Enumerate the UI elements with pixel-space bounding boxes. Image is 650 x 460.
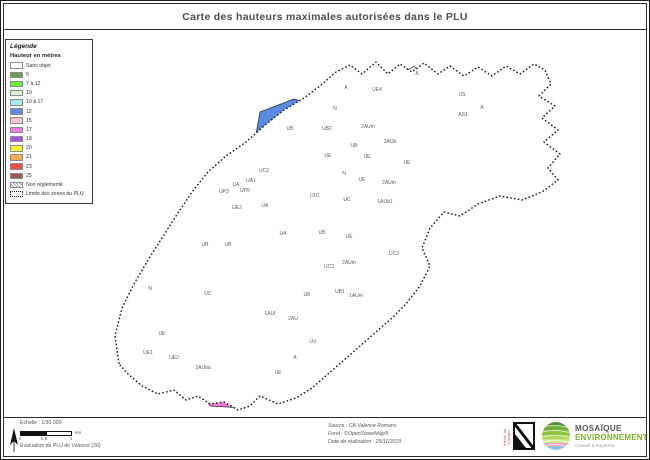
legend-row: 23 [10, 162, 89, 171]
eval-text: Evaluation du PLU de Valence (26) [20, 443, 101, 449]
zone-label: UP3 [219, 189, 229, 195]
zone-label: UA [280, 231, 288, 237]
legend-label: Sans objet [26, 63, 51, 69]
page-title: Carte des hauteurs maximales autorisées … [182, 11, 468, 23]
scale-bar-filled [20, 431, 47, 436]
legend-row: Limite des zones du PLU [10, 190, 89, 199]
zone-label: UA [262, 203, 270, 209]
scale-tick: 1 [70, 436, 72, 441]
legend-items: Sans objet57 à 121010 à 1712151718202123… [10, 61, 89, 199]
zone-label: UE [364, 154, 372, 160]
zone-label: UV [310, 339, 318, 345]
zone-label: UE [275, 370, 283, 376]
zone-label: UE [346, 234, 354, 240]
zone-label: UB [304, 292, 312, 298]
zone-label: 2AU [288, 316, 298, 322]
zone-label: UC2 [259, 168, 269, 174]
zone-label: UB2 [322, 126, 332, 132]
zone-label: 1AUb1 [377, 199, 393, 205]
source-line: Date de réalisation : 29/11/2019 [328, 439, 401, 447]
legend-swatch [10, 173, 23, 180]
map-frame: AUE4ANUBUB22AUm2AUbUBUEUENUE2AUmUEUC2UAU… [3, 29, 647, 418]
zone-label: 1AUI [264, 311, 275, 317]
legend-row: Non réglementé [10, 180, 89, 189]
scale-tick: 0,5 [41, 436, 47, 441]
legend-title: Légende [10, 43, 89, 50]
legend-row: 17 [10, 125, 89, 134]
source-line: Fond : ©OpenStreetMap® [328, 431, 401, 439]
legend-swatch [10, 191, 23, 198]
mosaique-logo: MOSAÏQUE ENVIRONNEMENT Conseil & Experti… [541, 421, 648, 451]
legend-swatch [10, 62, 23, 69]
legend-label: 7 à 12 [26, 81, 40, 87]
zone-label: UE2 [169, 355, 179, 361]
legend: Légende Hauteur en mètres Sans objet57 à… [5, 39, 93, 204]
legend-swatch [10, 154, 23, 161]
title-bar: Carte des hauteurs maximales autorisées … [3, 3, 647, 30]
zone-label: UE [159, 331, 167, 337]
zone-label: UE [359, 177, 367, 183]
legend-label: 15 [26, 118, 32, 124]
zone-label: N [333, 106, 337, 112]
legend-row: 10 [10, 89, 89, 98]
legend-swatch [10, 108, 23, 115]
zone-label: 2AUm [361, 124, 375, 130]
legend-label: Non réglementé [26, 182, 63, 188]
scale-block: Echelle : 1/35 000 km 0 0,5 1 Evaluation… [20, 420, 101, 449]
scale-ticks: 0 0,5 1 [20, 436, 78, 442]
atelier-logo-text: Atelier du triangle [503, 422, 510, 452]
legend-label: 21 [26, 154, 32, 160]
zone-label: 2AUm [382, 180, 396, 186]
legend-swatch [10, 145, 23, 152]
legend-swatch [10, 163, 23, 170]
zone-label: UA1 [246, 178, 256, 184]
legend-label: Limite des zones du PLU [26, 191, 84, 197]
legend-label: 17 [26, 127, 32, 133]
legend-swatch [10, 90, 23, 97]
zone-label: 2AUba [195, 365, 211, 371]
zone-label: UB [319, 230, 327, 236]
legend-label: 18 [26, 136, 32, 142]
zone-label: UE [404, 160, 412, 166]
legend-row: 21 [10, 153, 89, 162]
zone-label: UB [202, 242, 210, 248]
legend-label: 12 [26, 109, 32, 115]
scale-unit: km [75, 431, 81, 436]
legend-row: 20 [10, 144, 89, 153]
legend-swatch [10, 117, 23, 124]
legend-swatch [10, 127, 23, 134]
atelier-logo: Atelier du triangle [503, 421, 537, 453]
zone-label: UE2 [232, 205, 242, 211]
source-block: Source : CA Valence Romans Fond : ©OpenS… [328, 423, 401, 446]
zone-label: UC3 [389, 251, 399, 257]
scale-bar-empty [47, 431, 72, 436]
legend-row: 25 [10, 171, 89, 180]
zone-label: UD1 [310, 193, 320, 199]
legend-swatch [10, 136, 23, 143]
zone-label: 1AUm [349, 293, 363, 299]
zone-label: UB [287, 126, 295, 132]
legend-label: 20 [26, 145, 32, 151]
legend-row: Sans objet [10, 61, 89, 70]
zone-label: 2AUb [384, 139, 397, 145]
zone-label: UA [233, 182, 241, 188]
atelier-logo-icon [511, 421, 537, 451]
legend-row: 5 [10, 70, 89, 79]
legend-row: 7 à 12 [10, 79, 89, 88]
zone-label: N [342, 171, 346, 177]
mosaique-sub: ENVIRONNEMENT [575, 433, 648, 442]
zone-label: UE4 [372, 87, 382, 93]
mosaique-name: MOSAÏQUE [575, 424, 648, 433]
zone-label: UC [204, 291, 212, 297]
zone-label: UB [351, 143, 359, 149]
legend-swatch [10, 81, 23, 88]
plu-map-svg: AUE4ANUBUB22AUm2AUbUBUEUENUE2AUmUEUC2UAU… [4, 30, 647, 418]
legend-row: 12 [10, 107, 89, 116]
source-line: Source : CA Valence Romans [328, 423, 401, 431]
zone-label: US [459, 92, 467, 98]
zone-label: UE1 [143, 350, 153, 356]
legend-row: 18 [10, 135, 89, 144]
zone-label: UC [343, 197, 351, 203]
zone-label: UC2 [324, 264, 334, 270]
legend-label: 25 [26, 173, 32, 179]
zone-label: N [148, 286, 152, 292]
legend-label: 10 [26, 90, 32, 96]
legend-swatch [10, 72, 23, 79]
zone-label: 2AUm [342, 260, 356, 266]
zone-label: UP5 [240, 188, 250, 194]
mosaique-logo-icon [541, 421, 571, 451]
legend-row: 15 [10, 116, 89, 125]
mosaique-tagline: Conseil & Expertise [575, 443, 648, 448]
zone-label: UE [325, 153, 333, 159]
footer: Echelle : 1/35 000 km 0 0,5 1 Evaluation… [3, 417, 647, 457]
legend-swatch [10, 182, 23, 189]
legend-label: 10 à 17 [26, 99, 43, 105]
legend-label: 23 [26, 164, 32, 170]
scale-text: Echelle : 1/35 000 [20, 420, 101, 426]
legend-swatch [10, 99, 23, 106]
legend-subtitle: Hauteur en mètres [10, 53, 89, 59]
zone-label: UB1 [335, 289, 345, 295]
plu-map-page: Carte des hauteurs maximales autorisées … [0, 0, 650, 460]
plu-boundary [115, 62, 560, 410]
mosaique-logo-texts: MOSAÏQUE ENVIRONNEMENT Conseil & Experti… [575, 424, 648, 449]
scale-tick: 0 [19, 436, 21, 441]
zone-label: AS1 [458, 112, 468, 118]
legend-row: 10 à 17 [10, 98, 89, 107]
legend-label: 5 [26, 72, 29, 78]
zone-label: UB [225, 242, 233, 248]
